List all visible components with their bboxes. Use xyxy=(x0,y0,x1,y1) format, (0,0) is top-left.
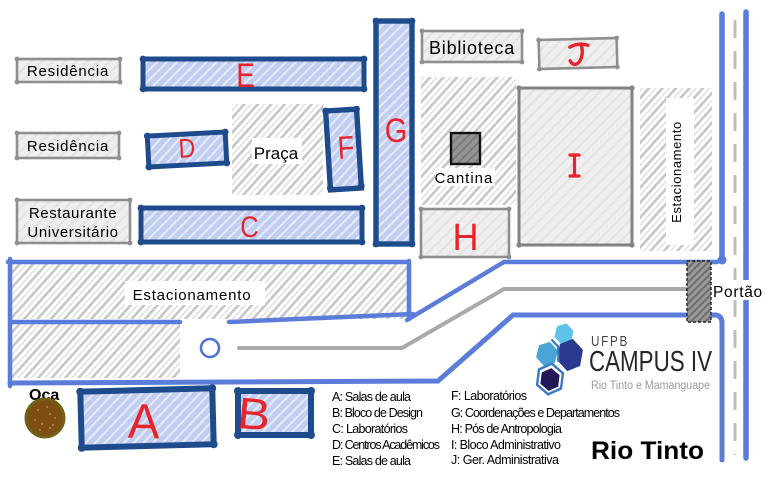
svg-text:F: F xyxy=(337,130,356,167)
svg-text:J: Ger. Administrativa: J: Ger. Administrativa xyxy=(451,453,559,467)
svg-text:Estacionamento: Estacionamento xyxy=(133,287,252,304)
svg-text:D: D xyxy=(178,133,196,164)
svg-text:Restaurante: Restaurante xyxy=(29,205,117,222)
svg-text:Rio Tinto e Mamanguape: Rio Tinto e Mamanguape xyxy=(591,380,710,392)
svg-text:A: Salas de aula: A: Salas de aula xyxy=(332,390,411,404)
svg-text:Cantina: Cantina xyxy=(435,170,494,187)
svg-text:Portão: Portão xyxy=(713,284,763,301)
svg-text:C: Laboratórios: C: Laboratórios xyxy=(332,422,408,436)
svg-text:Biblioteca: Biblioteca xyxy=(429,38,515,58)
svg-text:A: A xyxy=(127,394,161,450)
svg-text:Praça: Praça xyxy=(254,144,299,163)
svg-text:Rio Tinto: Rio Tinto xyxy=(591,437,704,465)
svg-text:E: E xyxy=(236,56,255,94)
svg-text:C: C xyxy=(240,210,258,243)
svg-text:E: Salas de aula: E: Salas de aula xyxy=(332,454,411,468)
svg-text:F: Laboratórios: F: Laboratórios xyxy=(451,389,527,403)
svg-text:I: Bloco Administrativo: I: Bloco Administrativo xyxy=(451,438,561,452)
svg-text:Estacionamento: Estacionamento xyxy=(669,121,684,223)
svg-text:Universitário: Universitário xyxy=(27,224,118,241)
svg-text:H: H xyxy=(452,215,478,258)
svg-text:Residência: Residência xyxy=(27,138,109,155)
svg-text:B: B xyxy=(235,388,273,439)
svg-text:H: Pós de Antropologia: H: Pós de Antropologia xyxy=(451,422,562,436)
svg-text:G: Coordenações e Departamento: G: Coordenações e Departamentos xyxy=(451,406,620,420)
svg-text:G: G xyxy=(385,111,407,150)
svg-text:D: Centros Acadêmicos: D: Centros Acadêmicos xyxy=(332,438,440,452)
svg-text:CAMPUS IV: CAMPUS IV xyxy=(589,346,713,378)
svg-text:B: Bloco de Design: B: Bloco de Design xyxy=(332,406,423,420)
svg-text:Residência: Residência xyxy=(27,63,109,80)
